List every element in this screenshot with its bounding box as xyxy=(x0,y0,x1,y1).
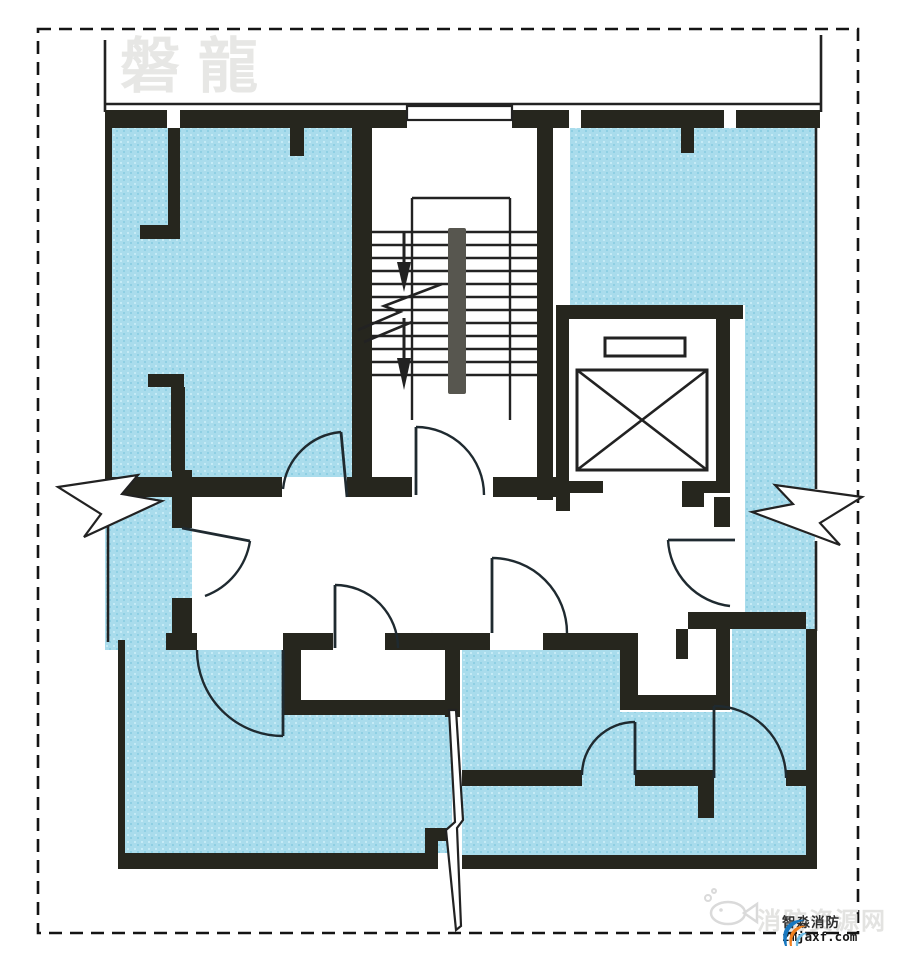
wall xyxy=(676,629,688,659)
fish-bubble xyxy=(705,895,711,901)
wall xyxy=(462,770,582,786)
door-arc xyxy=(205,541,250,596)
wall xyxy=(806,629,817,869)
wall xyxy=(168,128,180,232)
wall xyxy=(166,633,197,650)
floorplan-drawing xyxy=(0,0,897,956)
wall xyxy=(445,633,460,717)
wall xyxy=(290,128,304,156)
wall xyxy=(118,853,438,869)
logo-block: 智淼消防 zmjaxf.com xyxy=(779,916,897,943)
wall xyxy=(786,770,806,786)
wall xyxy=(140,225,180,239)
wall xyxy=(172,598,192,635)
stair-window xyxy=(407,106,512,120)
door-arc xyxy=(416,427,484,495)
stair-handrail xyxy=(448,228,466,394)
wall xyxy=(180,110,407,128)
wall xyxy=(688,612,806,629)
fish-tail xyxy=(744,904,757,922)
wall xyxy=(425,828,438,855)
staircase xyxy=(358,106,537,420)
wall xyxy=(385,633,490,650)
floorplan-page: 磐龍 消防资源网 智淼消防 zmjaxf.com xyxy=(0,0,897,956)
fish-body xyxy=(711,902,745,924)
wall xyxy=(462,855,806,869)
wall xyxy=(537,110,553,500)
wall xyxy=(736,110,820,128)
wall xyxy=(543,633,620,650)
wall xyxy=(118,640,125,860)
wall xyxy=(105,110,112,483)
fish-eye xyxy=(719,908,723,912)
elevator xyxy=(577,338,707,470)
door-leaf xyxy=(182,528,250,541)
elevator-counterweight xyxy=(605,338,685,356)
wall xyxy=(681,128,694,153)
wall xyxy=(581,110,724,128)
wall xyxy=(171,387,185,471)
wall xyxy=(172,470,192,528)
wall xyxy=(556,481,603,511)
wall xyxy=(493,477,556,497)
wall xyxy=(352,110,372,497)
wall xyxy=(112,477,282,497)
wall xyxy=(635,770,698,786)
wall xyxy=(347,477,412,497)
fish-icon xyxy=(705,889,757,924)
room-fill xyxy=(112,128,352,477)
door-arc xyxy=(668,540,730,606)
fish-bubble xyxy=(712,889,716,893)
wall xyxy=(283,700,460,715)
wall xyxy=(716,629,730,699)
swoosh-logo-icon xyxy=(779,916,807,948)
door-arc xyxy=(492,558,567,633)
wall xyxy=(556,319,569,481)
wall xyxy=(620,633,638,705)
wall xyxy=(698,770,714,818)
stair-arrow-head xyxy=(397,262,411,292)
wall xyxy=(556,305,743,319)
room-fill xyxy=(570,128,815,305)
wall xyxy=(105,110,167,128)
wall xyxy=(716,319,730,481)
wall xyxy=(148,374,184,387)
wall xyxy=(714,497,730,527)
